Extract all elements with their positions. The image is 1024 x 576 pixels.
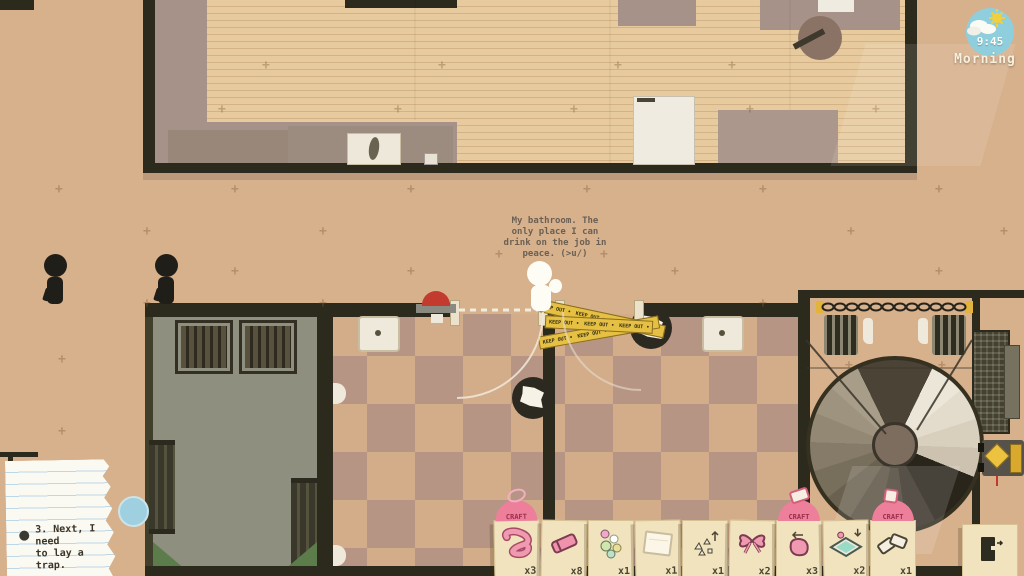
rubber-tube-icon — [499, 527, 536, 560]
boot — [863, 318, 873, 344]
hotbar-item-dominoes[interactable]: CRAFT x1 — [870, 520, 916, 576]
shoe-rack — [932, 315, 966, 355]
liquid-tray-icon — [828, 527, 865, 560]
locker-bath-divider-wall — [317, 303, 333, 576]
desk — [168, 130, 288, 163]
item-quantity: x1 — [665, 566, 677, 576]
upper-wall-shadow — [143, 173, 917, 180]
spiral-staircase-hub — [872, 422, 918, 468]
chain — [823, 304, 966, 311]
sun-cloud-icon — [966, 8, 1014, 38]
fridge — [633, 96, 695, 165]
time-of-day-indicator: 9:45 — [966, 8, 1014, 56]
item-quantity: x2 — [758, 566, 770, 576]
hotbar-item-tacks[interactable]: x1 — [682, 520, 728, 576]
boot — [918, 318, 928, 344]
item-quantity: x1 — [618, 566, 630, 576]
note-bullet — [19, 531, 29, 541]
item-quantity: x3 — [524, 566, 536, 576]
fridge-handle — [637, 98, 655, 102]
thought-bubble-text: My bathroom. The only place I can drink … — [480, 216, 630, 260]
bench — [149, 440, 175, 534]
shoe-rack — [824, 315, 858, 355]
stairs-room-top-wall — [806, 290, 1024, 298]
upper-room-left-wall — [143, 0, 155, 163]
hotbar-item-rubber-tube[interactable]: CRAFT x3 — [493, 520, 540, 576]
sink — [358, 316, 400, 352]
item-quantity: x2 — [853, 566, 865, 576]
cart-stub — [978, 443, 984, 452]
desk — [718, 110, 838, 163]
hotbar-item-eraser[interactable]: x8 — [540, 520, 587, 576]
hotbar-item-marbles[interactable]: x1 — [588, 520, 634, 576]
top-left-wall-stub — [0, 0, 34, 10]
hotbar-item-liquid-tray[interactable]: x2 — [822, 520, 869, 576]
side-panel — [1004, 345, 1020, 419]
small-white-desk — [818, 0, 854, 12]
sink — [702, 316, 744, 352]
objective-note: 3. Next, I need to lay a trap. — [5, 459, 119, 576]
cup — [424, 153, 438, 165]
door-icon — [973, 533, 1009, 567]
item-quantity: x8 — [570, 566, 582, 576]
wall-corner — [0, 452, 38, 457]
bathroom-top-wall-a — [145, 303, 455, 317]
hotbar-item-paper-sheet[interactable]: x1 — [634, 520, 681, 576]
item-quantity: x1 — [900, 566, 912, 576]
chain-end-cap — [965, 301, 973, 313]
floor-grate — [239, 320, 297, 374]
hotbar-item-pouch[interactable]: CRAFT x3 — [776, 520, 822, 576]
ribbon-bow-icon — [734, 527, 771, 560]
cart-stub — [978, 463, 984, 472]
chain-end-cap — [816, 301, 824, 313]
exit-door-button[interactable] — [962, 524, 1018, 576]
clock-time: 9:45 — [966, 35, 1014, 48]
craft-sketch — [883, 488, 899, 504]
upper-room-right-wall — [905, 0, 917, 163]
tacks-icon — [687, 527, 723, 559]
wall-tag — [431, 314, 443, 323]
paper-sheet-icon — [640, 527, 677, 560]
item-quantity: x1 — [712, 566, 724, 576]
marbles-icon — [593, 527, 629, 559]
clock-period-label: Morning — [946, 52, 1024, 67]
top-mid-wall-stub — [345, 0, 457, 8]
blue-bucket — [118, 496, 149, 527]
cart-panel — [1010, 444, 1022, 473]
pouch-icon — [781, 527, 817, 559]
floor-grate — [175, 320, 233, 374]
dominoes-icon — [875, 527, 911, 559]
upper-room-bottom-wall — [143, 163, 917, 173]
eraser-icon — [546, 527, 583, 560]
game-viewport: KEEP OUTKEEP OUTKEEP OUT KEEP OUTKEEP OU… — [0, 0, 1024, 576]
item-quantity: x3 — [806, 566, 818, 576]
gray-block — [618, 0, 696, 26]
cart-drip — [996, 476, 998, 486]
red-dome-object — [422, 291, 450, 306]
note-text: 3. Next, I need to lay a trap. — [35, 523, 119, 572]
hotbar-item-ribbon-bow[interactable]: x2 — [728, 520, 775, 576]
